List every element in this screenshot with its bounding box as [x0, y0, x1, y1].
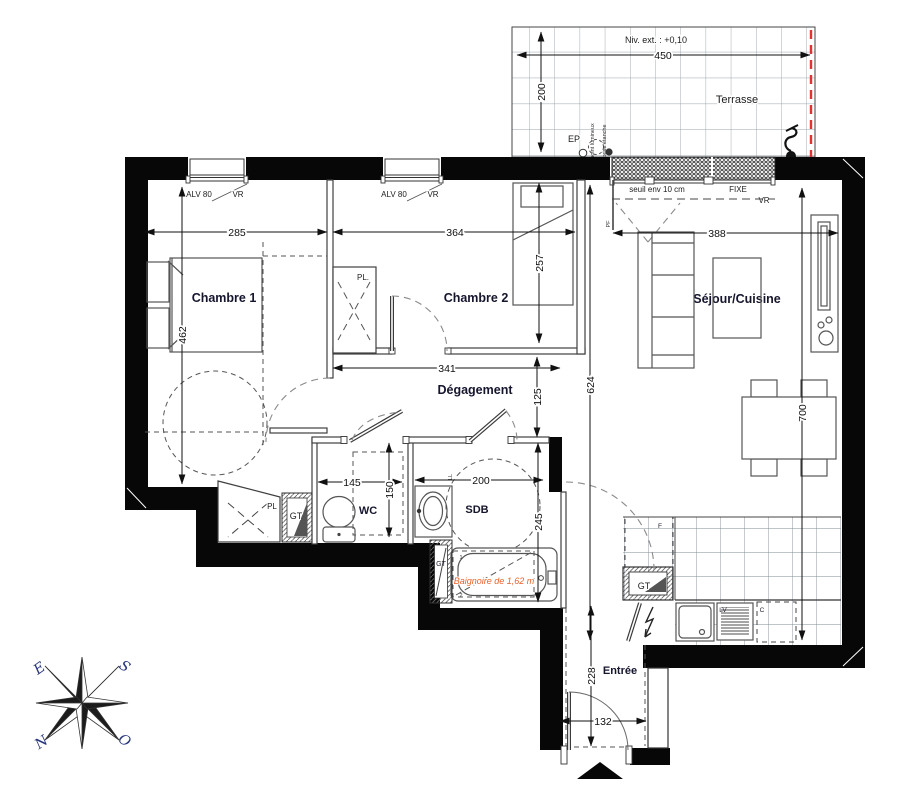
- dim-228: 228: [586, 667, 598, 685]
- dim-257: 257: [534, 254, 546, 272]
- closet-pl-label: PL.: [357, 273, 369, 282]
- prise-etanche-label: prise étanche: [602, 124, 608, 157]
- dishwasher: LV: [717, 603, 753, 640]
- dining-table: [742, 380, 836, 476]
- dim-364: 364: [446, 227, 464, 239]
- dim-450: 450: [654, 50, 672, 62]
- entree-right-wall: [648, 668, 668, 748]
- dim-462: 462: [177, 326, 189, 344]
- dim-285: 285: [228, 227, 246, 239]
- nightstand: [147, 262, 169, 302]
- chambre1: Chambre 1: [145, 242, 330, 475]
- compass-rose: E S N O: [30, 657, 134, 753]
- fridge-label: F: [658, 523, 662, 530]
- window1-vr-label: VR: [232, 190, 243, 199]
- pillow: [521, 186, 563, 207]
- duct-gt-kitchen: GT: [623, 567, 673, 600]
- room-label-entree: Entrée: [603, 665, 637, 677]
- dim-388: 388: [708, 228, 726, 240]
- seuil-label: seuil env 10 cm: [629, 185, 685, 194]
- room-label-wc: WC: [359, 505, 377, 517]
- marker-2: 2: [459, 593, 462, 599]
- room-label-terrasse: Terrasse: [716, 94, 758, 106]
- rainwater-pipe-icon: [579, 149, 587, 157]
- cooker-label: C: [760, 607, 765, 614]
- pf-label: PF: [606, 220, 612, 228]
- dim-150: 150: [384, 481, 396, 499]
- dim-125: 125: [532, 388, 544, 406]
- gt-kitchen-label: GT: [638, 581, 651, 591]
- sliding-bay-window: seuil env 10 cm FIXE VR PF: [606, 157, 775, 242]
- window-chambre1: ALV 80 VR: [186, 157, 248, 201]
- gt-label: GT: [436, 561, 446, 568]
- chair: [751, 459, 777, 476]
- dim-132: 132: [594, 716, 612, 728]
- kitchen-sink: [676, 603, 714, 641]
- gt-wc-label: GT: [290, 511, 303, 521]
- room-label-chambre1: Chambre 1: [192, 291, 257, 305]
- window2-alv-label: ALV 80: [381, 190, 407, 199]
- terrace-level-note: Niv. ext. : +0,10: [625, 35, 687, 45]
- ep-label: EP: [568, 134, 580, 144]
- room-label-sdb: SDB: [465, 504, 488, 516]
- sofa: [638, 232, 694, 368]
- dim-200-sdb: 200: [472, 475, 490, 487]
- floor-plan: 450 Niv. ext. : +0,10 200 Terrasse EP po…: [0, 0, 897, 800]
- exterior-walls: [125, 157, 865, 765]
- window-chambre2: ALV 80 VR: [381, 157, 443, 201]
- fixe-label: FIXE: [729, 185, 747, 194]
- dim-624: 624: [585, 376, 597, 394]
- bay-vr-label: VR: [758, 196, 769, 205]
- entrance-marker-triangle: [577, 762, 623, 779]
- single-bed: [513, 183, 573, 305]
- lv-label: LV: [719, 607, 727, 614]
- chair: [751, 380, 777, 397]
- nightstand: [147, 308, 169, 348]
- sejour-cuisine: Séjour/Cuisine: [638, 215, 838, 476]
- room-label-sejour: Séjour/Cuisine: [693, 292, 781, 306]
- room-label-chambre2: Chambre 2: [444, 291, 509, 305]
- chair: [801, 459, 827, 476]
- bathtub: [451, 548, 557, 601]
- compass-s: S: [116, 657, 133, 676]
- pl-lower-label: PL: [267, 502, 277, 511]
- terrace: 450 Niv. ext. : +0,10 200 Terrasse EP po…: [512, 27, 815, 161]
- marker-1: 1: [459, 555, 462, 561]
- duct-gt-bath: GT: [430, 540, 452, 603]
- dim-700: 700: [797, 404, 809, 422]
- dim-245: 245: [533, 513, 545, 531]
- compass-o: O: [115, 731, 134, 751]
- dim-145: 145: [343, 477, 361, 489]
- kitchen-counter: F GT LV C: [566, 482, 841, 645]
- dim-200-terrace: 200: [536, 83, 548, 101]
- closet-and-duct-lower-left: PL GT: [218, 481, 312, 542]
- window2-vr-label: VR: [427, 190, 438, 199]
- window1-alv-label: ALV 80: [186, 190, 212, 199]
- compass-e: E: [30, 659, 48, 679]
- degagement: Dégagement: [350, 383, 517, 441]
- sliding-door-swing: [616, 203, 680, 242]
- chair: [801, 380, 827, 397]
- washer-label: LL: [448, 474, 454, 480]
- floor-plan-drawing: 450 Niv. ext. : +0,10 200 Terrasse EP po…: [0, 0, 897, 800]
- toilet-bowl: [323, 497, 355, 528]
- turning-circle: [446, 459, 540, 553]
- sdb-pier: [549, 437, 562, 492]
- closet-pl-lower: [218, 481, 280, 542]
- bathtub-note: Baignoire de 1,62 m: [454, 576, 535, 586]
- terrace-tiles: [512, 27, 815, 157]
- dim-341: 341: [438, 363, 456, 375]
- chambre2-door-swing: [392, 296, 447, 351]
- point-lumineux-label: point lumineux: [590, 123, 596, 159]
- room-label-degagement: Dégagement: [437, 383, 513, 397]
- kitchen-wall-unit: [811, 215, 838, 352]
- turning-circle: [163, 371, 267, 475]
